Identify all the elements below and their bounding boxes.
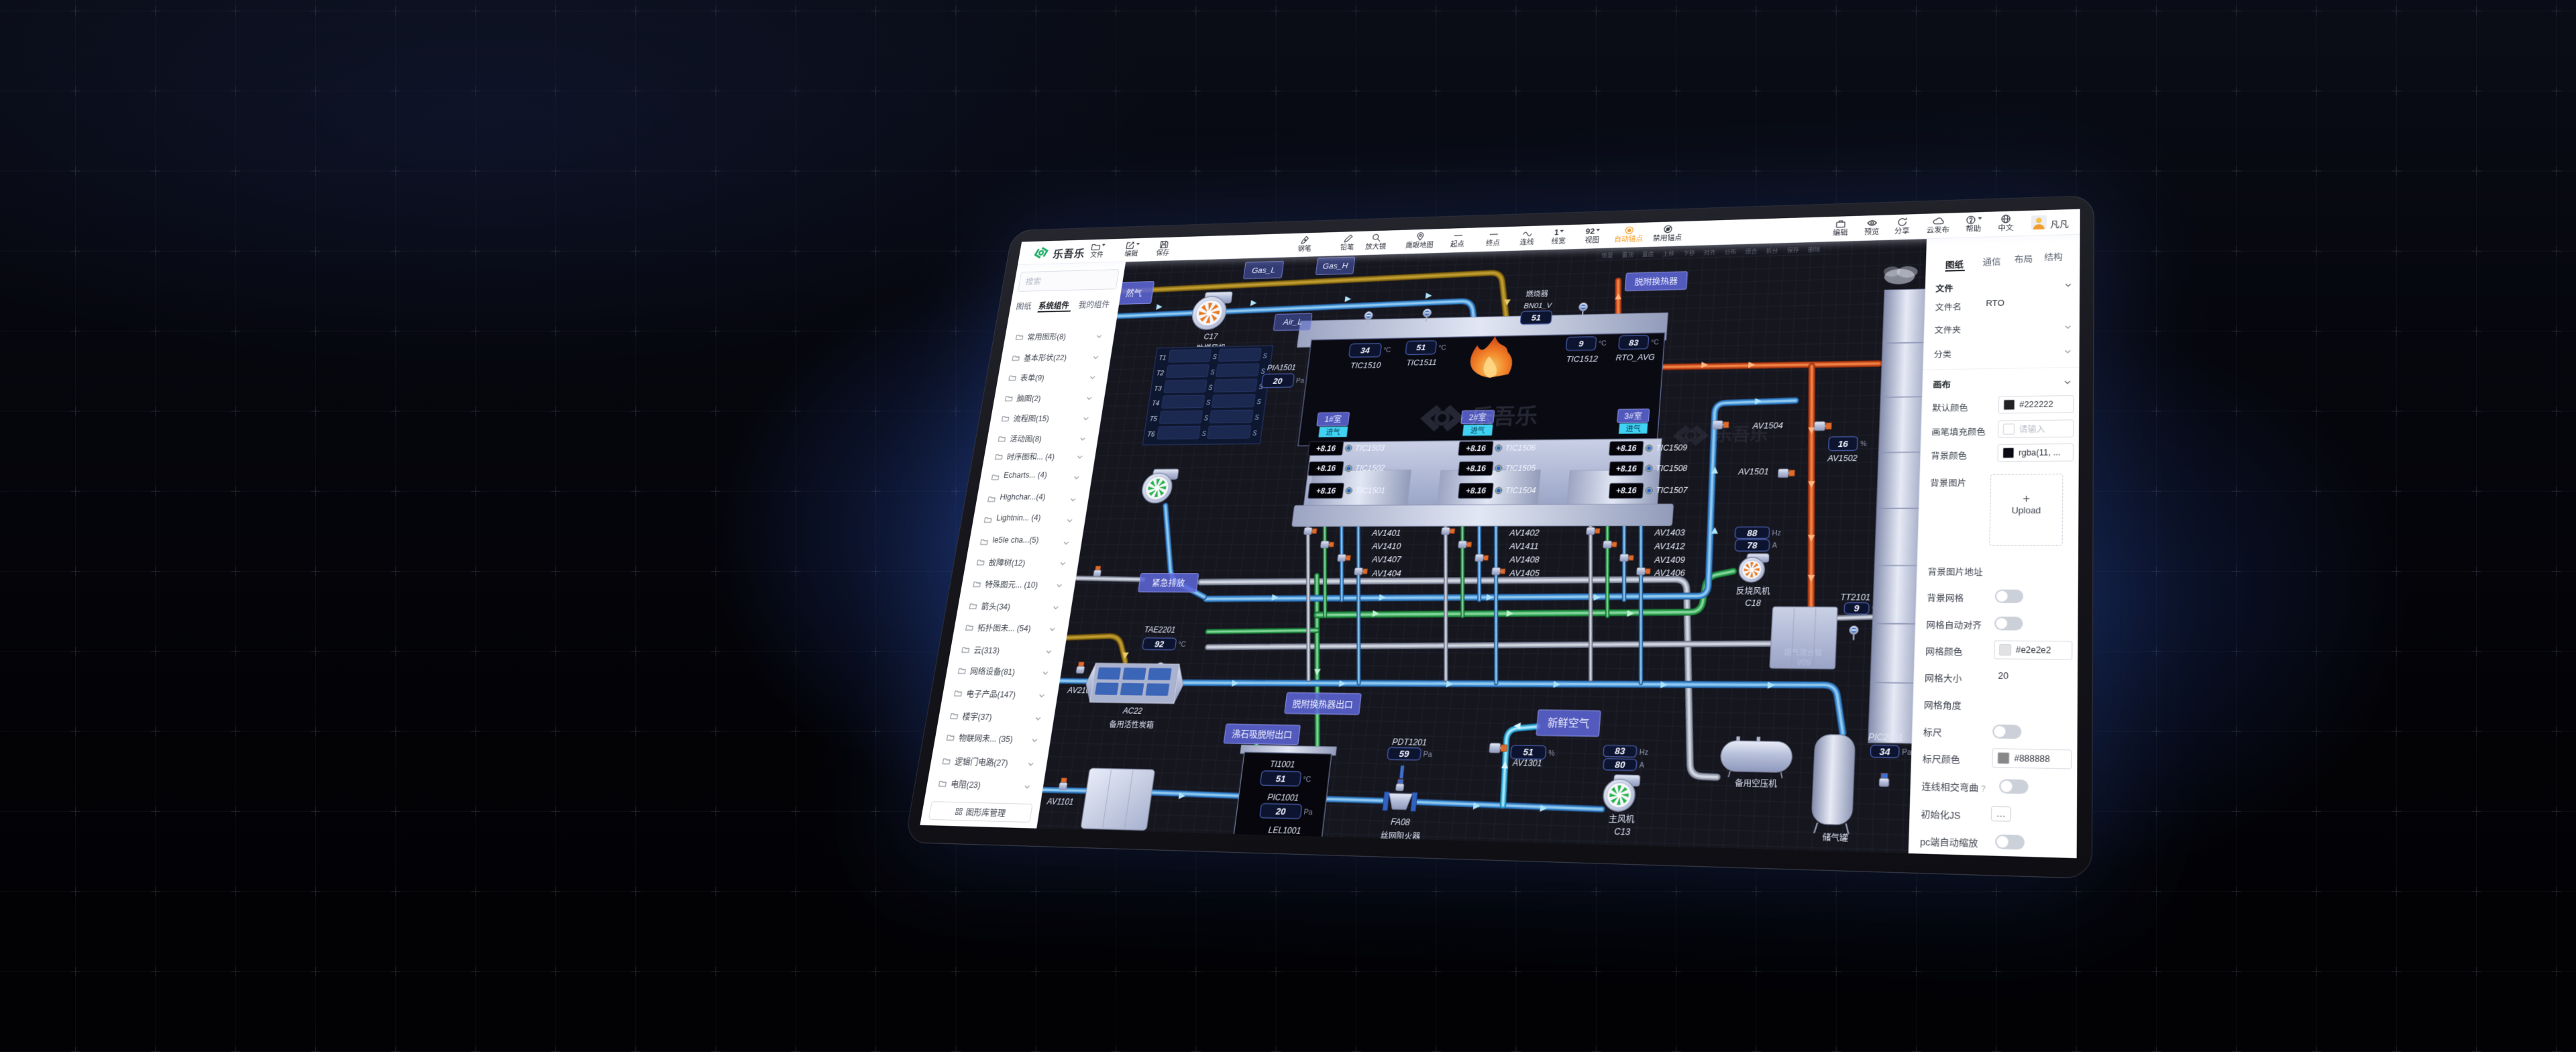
svg-text:乐吾乐: 乐吾乐 (1713, 425, 1769, 445)
svg-text:RTO_AVG: RTO_AVG (1615, 354, 1655, 363)
svg-text:C17: C17 (1203, 333, 1218, 342)
svg-text:51: 51 (1523, 747, 1534, 758)
svg-text:TIC1508: TIC1508 (1656, 464, 1688, 474)
svg-text:脱附换热器: 脱附换热器 (1634, 276, 1678, 286)
svg-text:上移: 上移 (1662, 250, 1675, 258)
svg-text:沸石吸脱附出口: 沸石吸脱附出口 (1231, 729, 1293, 741)
svg-text:Pa: Pa (1423, 750, 1433, 759)
svg-text:置顶: 置顶 (1621, 252, 1634, 259)
svg-text:TIC1501: TIC1501 (1354, 487, 1385, 496)
svg-text:A: A (1772, 541, 1777, 549)
svg-text:+8.16: +8.16 (1316, 487, 1336, 496)
svg-text:T3: T3 (1154, 384, 1163, 392)
svg-text:Air_L: Air_L (1282, 318, 1303, 327)
svg-text:T2: T2 (1156, 369, 1165, 376)
svg-text:主风机: 主风机 (1608, 813, 1635, 825)
svg-text:AV1402: AV1402 (1509, 529, 1540, 538)
svg-text:51: 51 (1275, 774, 1286, 784)
svg-text:Gas_L: Gas_L (1251, 266, 1276, 275)
svg-text:T1: T1 (1158, 354, 1167, 362)
svg-text:紧急排放: 紧急排放 (1151, 578, 1186, 588)
svg-text:C18: C18 (1745, 599, 1762, 609)
svg-text:16: 16 (1837, 439, 1849, 450)
svg-text:烟气混合箱: 烟气混合箱 (1784, 647, 1823, 657)
svg-text:88: 88 (1747, 529, 1758, 539)
svg-text:59: 59 (1399, 749, 1409, 760)
svg-text:进气: 进气 (1326, 428, 1340, 437)
svg-text:AV1405: AV1405 (1509, 570, 1540, 579)
svg-text:78: 78 (1747, 541, 1758, 551)
svg-text:脱附换热器出口: 脱附换热器出口 (1292, 698, 1354, 710)
svg-text:TT2101: TT2101 (1840, 593, 1870, 602)
svg-text:AV1408: AV1408 (1509, 556, 1540, 565)
svg-text:+8.16: +8.16 (1615, 445, 1637, 454)
svg-text:83: 83 (1629, 338, 1639, 348)
svg-text:Hz: Hz (1639, 747, 1649, 756)
svg-text:°C: °C (1303, 775, 1311, 784)
svg-text:AV1406: AV1406 (1654, 570, 1686, 579)
svg-text:%: % (1548, 749, 1556, 757)
svg-text:92: 92 (1154, 639, 1165, 649)
svg-text:Pa: Pa (1303, 808, 1313, 817)
svg-text:51: 51 (1416, 344, 1426, 353)
svg-text:置底: 置底 (1642, 250, 1655, 258)
svg-text:TIC1512: TIC1512 (1566, 355, 1599, 364)
svg-text:AV1501: AV1501 (1737, 468, 1768, 478)
svg-text:°C: °C (1383, 346, 1391, 354)
svg-text:Hz: Hz (1772, 529, 1781, 537)
svg-text:TIC1504: TIC1504 (1505, 487, 1537, 496)
svg-text:备用活性炭箱: 备用活性炭箱 (1109, 720, 1155, 731)
svg-text:20: 20 (1272, 377, 1283, 386)
svg-text:1#室: 1#室 (1324, 414, 1342, 424)
svg-text:燃烧器: 燃烧器 (1525, 289, 1549, 299)
svg-text:A: A (1639, 761, 1645, 770)
svg-text:TI1001: TI1001 (1269, 760, 1295, 770)
svg-text:83: 83 (1615, 747, 1625, 757)
svg-text:AV1410: AV1410 (1371, 543, 1401, 551)
svg-text:T6: T6 (1146, 431, 1155, 438)
svg-text:AC22: AC22 (1122, 706, 1143, 716)
svg-text:FA08: FA08 (1390, 818, 1411, 828)
svg-text:°C: °C (1598, 339, 1607, 348)
svg-text:下移: 下移 (1683, 249, 1696, 257)
svg-text:PIC2001: PIC2001 (1868, 733, 1903, 744)
svg-text:20: 20 (1275, 806, 1287, 817)
svg-text:+8.16: +8.16 (1465, 487, 1487, 496)
svg-text:34: 34 (1879, 747, 1890, 757)
svg-text:°C: °C (1178, 640, 1187, 648)
svg-text:AV1409: AV1409 (1654, 556, 1686, 566)
svg-text:分布: 分布 (1724, 248, 1737, 256)
svg-text:TIC1509: TIC1509 (1656, 444, 1688, 454)
svg-text:新鲜空气: 新鲜空气 (1547, 717, 1590, 730)
svg-text:3#室: 3#室 (1624, 411, 1643, 421)
svg-text:AV1403: AV1403 (1654, 529, 1686, 539)
svg-text:LEL1001: LEL1001 (1268, 826, 1301, 837)
svg-text:+8.16: +8.16 (1615, 465, 1637, 474)
svg-text:C13: C13 (1614, 827, 1631, 837)
svg-text:反烧风机: 反烧风机 (1735, 586, 1770, 597)
svg-text:AV1401: AV1401 (1371, 529, 1401, 538)
svg-text:保存: 保存 (1786, 246, 1799, 254)
svg-text:AV1301: AV1301 (1511, 759, 1542, 769)
svg-text:PIA1501: PIA1501 (1267, 364, 1296, 372)
svg-text:°C: °C (1438, 344, 1446, 352)
svg-text:备用空压机: 备用空压机 (1735, 778, 1778, 790)
svg-text:进气: 进气 (1625, 424, 1641, 433)
svg-text:AV1412: AV1412 (1654, 543, 1686, 552)
svg-text:PDT1201: PDT1201 (1392, 738, 1428, 748)
svg-text:储气罐: 储气罐 (1822, 833, 1849, 844)
svg-text:TAE2201: TAE2201 (1144, 626, 1176, 635)
svg-text:80: 80 (1615, 760, 1626, 771)
svg-text:TIC1505: TIC1505 (1505, 464, 1536, 473)
svg-text:V09: V09 (1796, 658, 1811, 667)
svg-text:删除: 删除 (1808, 246, 1821, 254)
svg-text:9: 9 (1854, 604, 1859, 614)
svg-text:+8.16: +8.16 (1316, 445, 1336, 454)
svg-text:AV1407: AV1407 (1371, 556, 1402, 565)
svg-text:9: 9 (1578, 339, 1584, 349)
svg-text:+8.16: +8.16 (1615, 487, 1637, 496)
svg-text:T4: T4 (1151, 400, 1160, 407)
svg-text:51: 51 (1531, 314, 1541, 323)
svg-text:%: % (1860, 439, 1868, 448)
svg-text:对齐: 对齐 (1703, 248, 1716, 256)
svg-text:AV1101: AV1101 (1046, 797, 1075, 807)
svg-text:+8.16: +8.16 (1316, 465, 1336, 474)
svg-text:Pa: Pa (1295, 376, 1305, 384)
svg-text:乐吾乐: 乐吾乐 (1470, 404, 1539, 429)
svg-text:AV1502: AV1502 (1827, 454, 1858, 464)
svg-text:AV1404: AV1404 (1371, 570, 1401, 578)
svg-text:Pa: Pa (1902, 747, 1912, 757)
svg-text:°C: °C (1651, 338, 1660, 346)
svg-text:T5: T5 (1149, 415, 1158, 423)
svg-text:TIC1503: TIC1503 (1354, 444, 1385, 453)
svg-text:+8.16: +8.16 (1465, 465, 1487, 474)
svg-text:恢复: 恢复 (1601, 252, 1614, 260)
svg-text:34: 34 (1360, 346, 1370, 356)
svg-text:PIC1001: PIC1001 (1267, 793, 1299, 803)
svg-text:TIC1502: TIC1502 (1354, 464, 1385, 473)
svg-text:拆分: 拆分 (1766, 247, 1778, 255)
svg-text:BN01_V: BN01_V (1523, 302, 1554, 311)
svg-text:TIC1507: TIC1507 (1656, 486, 1688, 496)
svg-text:组合: 组合 (1745, 248, 1758, 256)
svg-text:Gas_H: Gas_H (1322, 262, 1348, 271)
svg-text:+8.16: +8.16 (1465, 445, 1487, 454)
svg-text:TIC1511: TIC1511 (1406, 359, 1437, 368)
svg-text:AV1411: AV1411 (1509, 543, 1539, 551)
svg-text:TIC1506: TIC1506 (1505, 444, 1536, 453)
svg-text:然气: 然气 (1125, 288, 1142, 299)
svg-text:TIC1510: TIC1510 (1350, 362, 1381, 370)
